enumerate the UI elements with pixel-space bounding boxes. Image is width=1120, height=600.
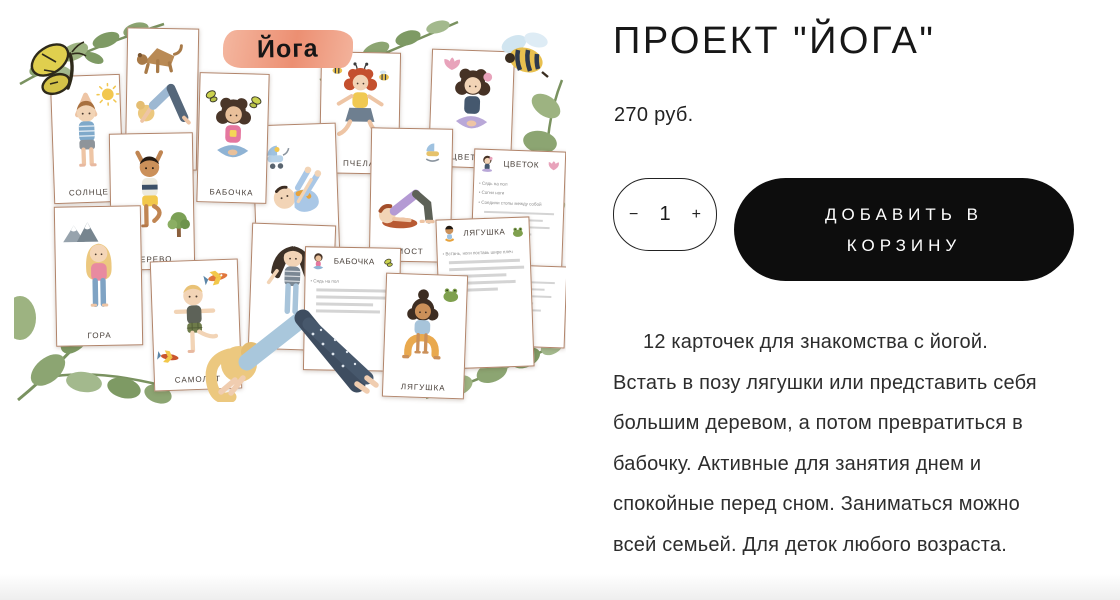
small-butterfly-icon-2 [249, 95, 262, 108]
stroller-icon [267, 145, 289, 169]
card-label: ЛЯГУШКА [398, 382, 447, 398]
image-title: Йога [257, 34, 319, 64]
small-butterfly-icon [383, 256, 395, 268]
instruction-title: БАБОЧКА [329, 257, 380, 267]
downward-dog-figure [195, 290, 405, 402]
quantity-increase-button[interactable]: + [692, 207, 701, 223]
small-butterfly-icon [205, 89, 218, 103]
card-label: СОЛНЦЕ [67, 187, 111, 203]
tree-icon [167, 212, 190, 237]
add-to-cart-button[interactable]: ДОБАВИТЬ В КОРЗИНУ [734, 178, 1074, 281]
quantity-value[interactable]: 1 [659, 203, 670, 226]
dog-icon [137, 45, 182, 73]
babochka-illustration [198, 73, 269, 189]
card-label: ГОРА [85, 331, 113, 345]
instruction-title: ЦВЕТОК [498, 159, 545, 170]
page-title: ПРОЕКТ "ЙОГА" [613, 20, 935, 63]
small-bee-icon-2 [379, 70, 389, 80]
sun-icon [97, 83, 119, 105]
product-price: 270 руб. [614, 104, 693, 127]
product-description: 12 карточек для знакомства с йогой. Вста… [613, 322, 1049, 566]
lotus-icon [548, 160, 560, 172]
bee-icon [496, 28, 554, 84]
frog-icon [512, 225, 524, 237]
yoga-card-gora: ГОРА [54, 205, 143, 346]
yoga-card-babochka: БАБОЧКА [196, 72, 269, 204]
page-bottom-fade [0, 574, 1120, 600]
product-photo[interactable]: Йога СОБАКА СОЛНЦЕ ПЧЕЛА ЦВЕТОК [14, 12, 566, 404]
lotus-icon [444, 57, 460, 70]
instruction-title: ЛЯГУШКА [460, 227, 509, 238]
image-title-banner: Йога [223, 30, 353, 68]
quantity-stepper[interactable]: − 1 + [613, 178, 717, 251]
avatar-girl-icon [311, 252, 326, 269]
quantity-decrease-button[interactable]: − [629, 207, 638, 223]
gora-illustration [55, 206, 142, 331]
plane-icon-2 [157, 350, 179, 365]
frog-icon [443, 288, 458, 302]
mountains-icon [63, 222, 99, 242]
avatar-boy-icon [442, 225, 458, 243]
cradle-icon [426, 143, 439, 161]
avatar-girl-icon [479, 155, 495, 173]
plane-icon [203, 268, 229, 287]
butterfly-icon [26, 32, 96, 104]
card-label: БАБОЧКА [207, 187, 255, 202]
